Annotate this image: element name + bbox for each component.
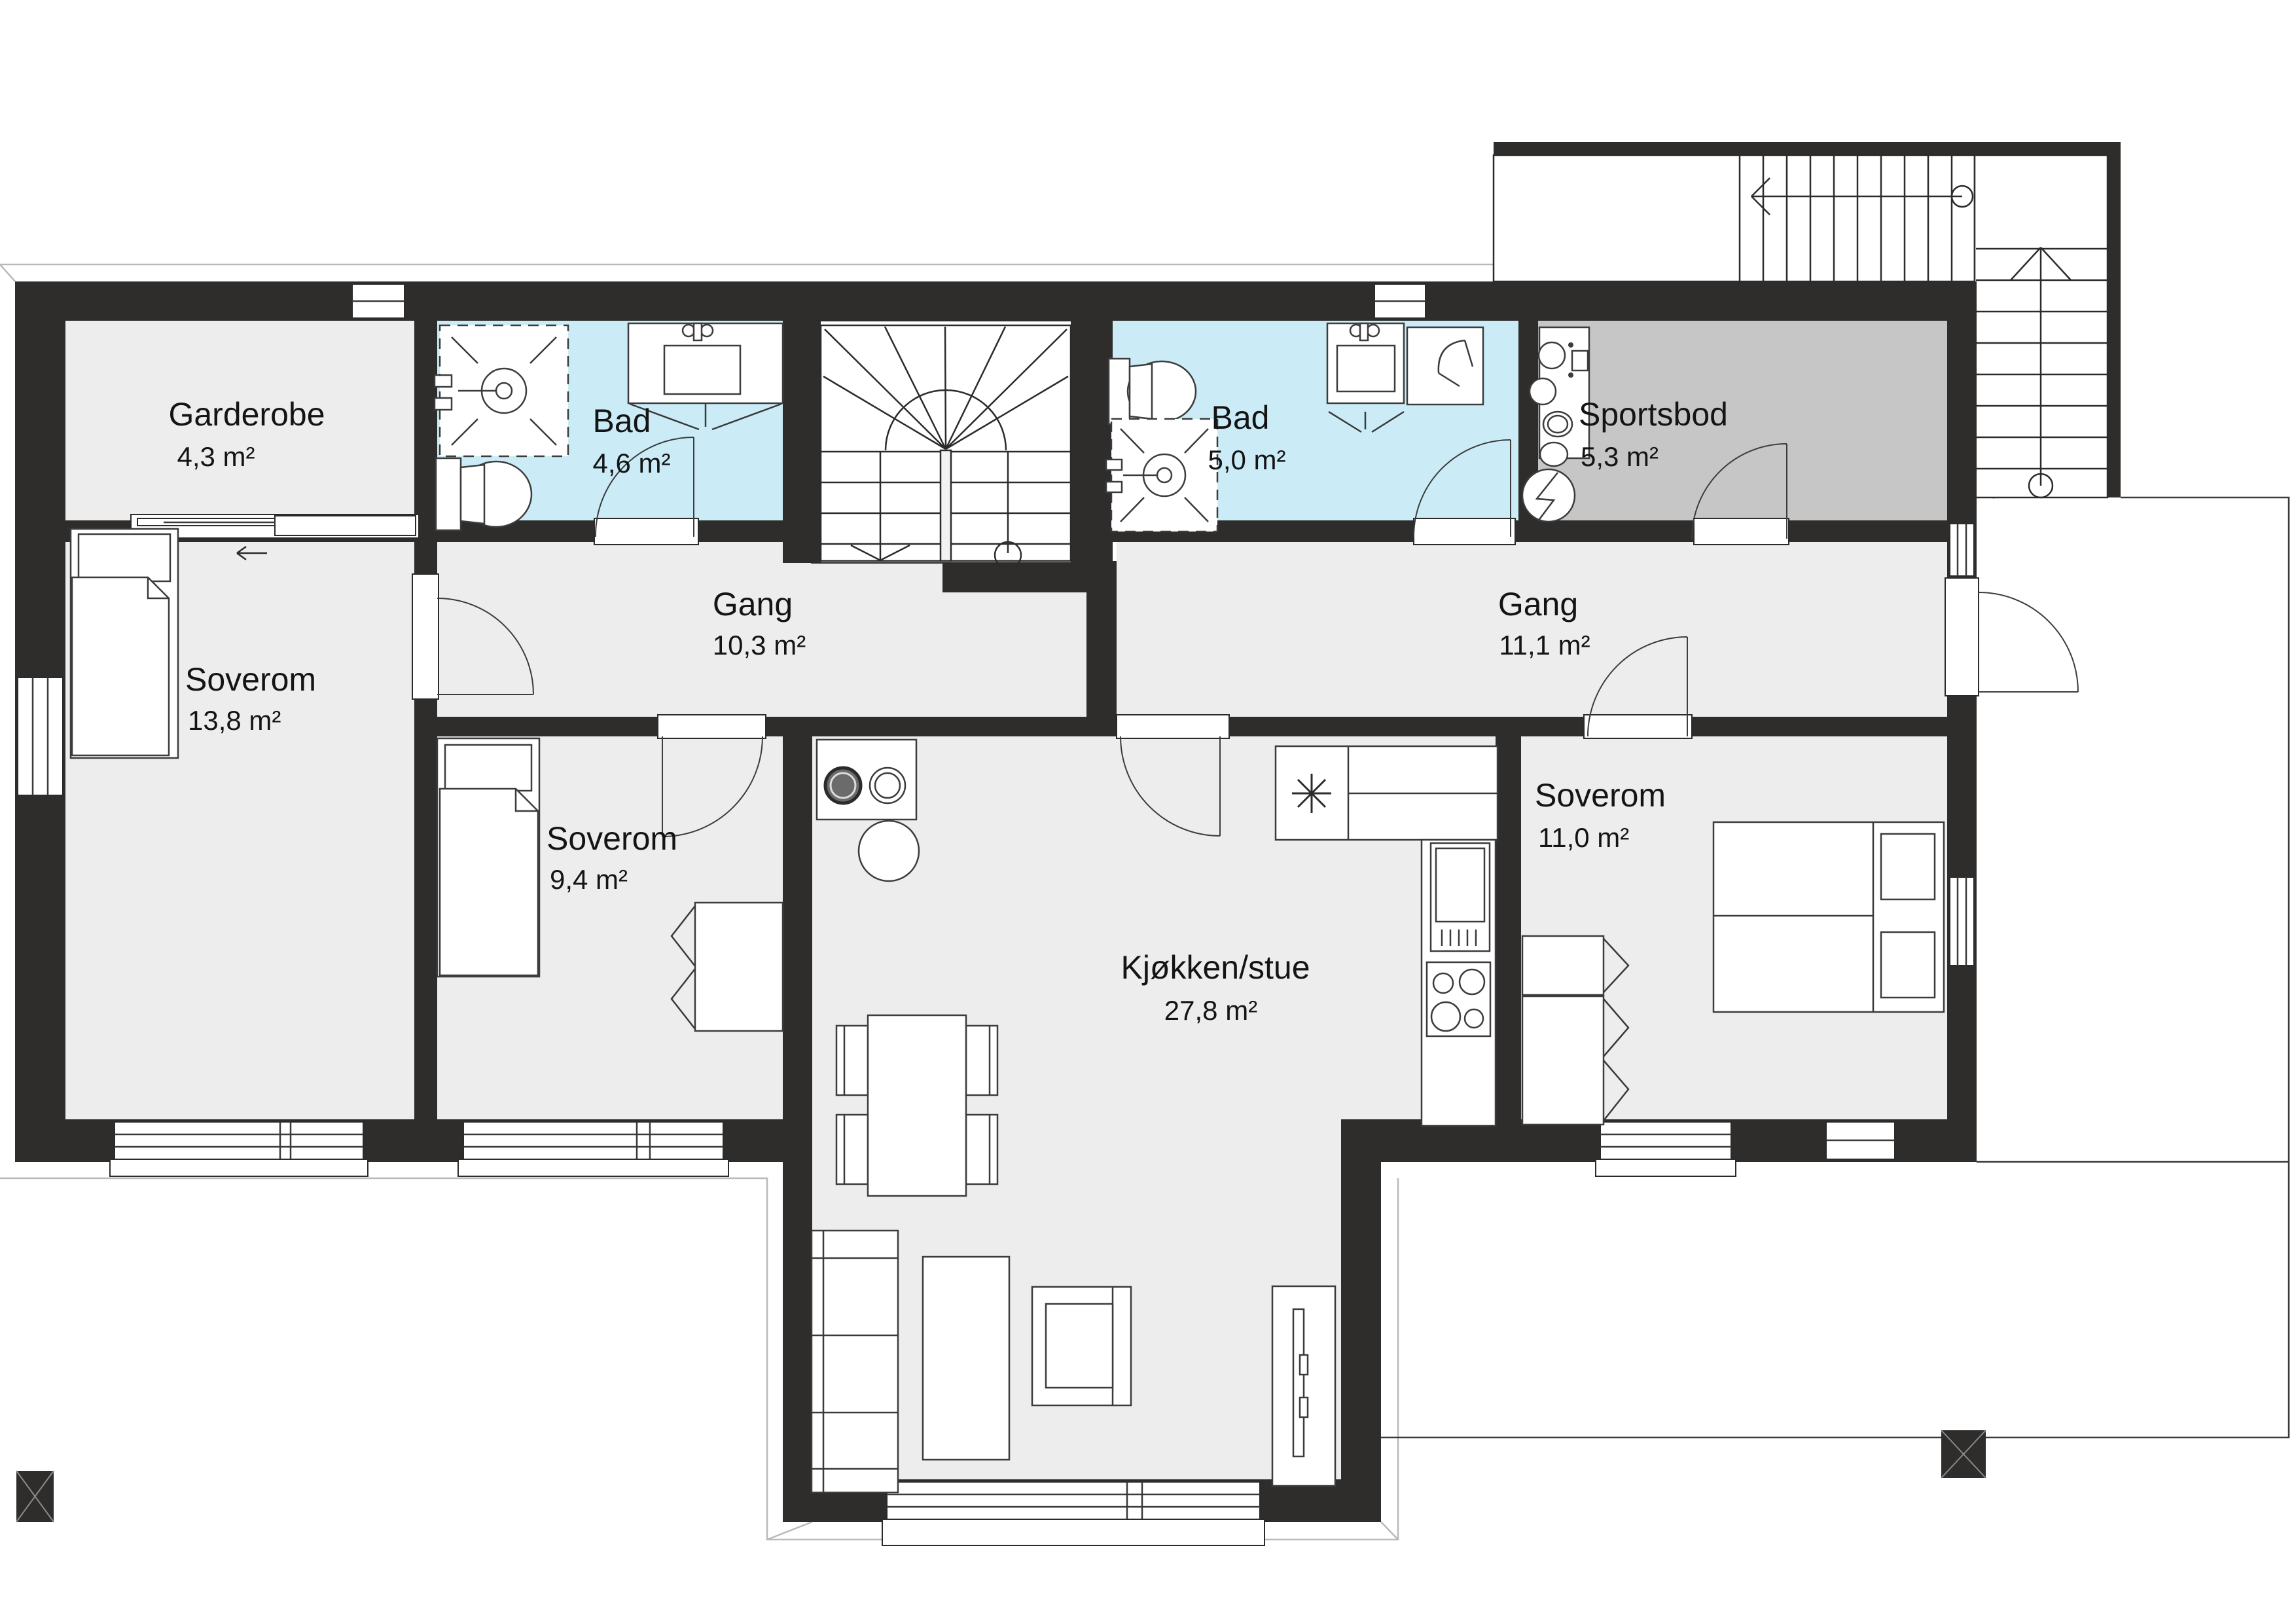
terrace-post-left <box>16 1471 54 1522</box>
armchair <box>1032 1287 1131 1405</box>
terrace-post-right <box>1941 1430 1986 1478</box>
label-soverom1-name: Soverom <box>185 661 316 698</box>
label-soverom2-area: 9,4 m² <box>550 864 628 895</box>
tv-bench <box>1272 1286 1335 1486</box>
door-entry <box>1945 578 2078 696</box>
label-kjokken-name: Kjøkken/stue <box>1121 949 1310 986</box>
toilet <box>1109 359 1196 424</box>
label-bad1-name: Bad <box>593 403 651 439</box>
label-kjokken-area: 27,8 m² <box>1164 995 1257 1026</box>
window-bottom-soverom2 <box>458 1122 728 1176</box>
label-gang1-name: Gang <box>713 586 793 623</box>
floor-gang-2 <box>1117 540 1947 717</box>
label-sportsbod-name: Sportsbod <box>1579 396 1728 433</box>
floor-plan-drawing: Garderobe 4,3 m² Bad 4,6 m² Bad 5,0 m² S… <box>0 0 2296 1624</box>
window-bottom-small <box>1826 1122 1895 1159</box>
shower <box>1106 419 1217 532</box>
wall-livingroom-right <box>1341 1162 1381 1522</box>
toilet <box>436 458 531 530</box>
cooktop <box>1427 962 1490 1036</box>
sofa <box>812 1231 898 1492</box>
wall-stair-bottom <box>942 561 1117 592</box>
wall-right <box>1947 281 1977 1162</box>
interior-staircase <box>812 321 1080 568</box>
window-right-soverom3 <box>1950 877 1974 965</box>
label-soverom3-area: 11,0 m² <box>1538 822 1629 853</box>
exterior-stair-right-wall <box>2108 142 2121 497</box>
shower <box>435 325 568 456</box>
label-garderobe-area: 4,3 m² <box>177 441 255 472</box>
window-top-bad2 <box>1374 284 1426 318</box>
label-soverom1-area: 13,8 m² <box>188 705 281 736</box>
label-sportsbod-area: 5,3 m² <box>1581 441 1659 472</box>
soverom2-bed <box>437 738 539 977</box>
exterior-stair-top-wall <box>1494 142 2121 155</box>
window-left-soverom1 <box>18 677 63 795</box>
window-right-gang2 <box>1950 524 1974 576</box>
sliding-door-livingroom <box>882 1482 1265 1545</box>
window-bottom-soverom1 <box>110 1122 368 1176</box>
wall-livingroom-left <box>783 1162 812 1522</box>
wall-soverom2-right <box>783 717 812 1119</box>
soverom3-bed <box>1713 822 1944 1012</box>
window-top-garderobe <box>352 284 404 318</box>
water-heater <box>1522 469 1575 522</box>
wall-kitchen-soverom3 <box>1496 736 1521 1119</box>
asterisk-symbol <box>1292 774 1331 813</box>
kitchen-counter-right <box>1422 840 1496 1126</box>
label-soverom2-name: Soverom <box>547 820 677 857</box>
side-table <box>923 1257 1009 1460</box>
label-gang1-area: 10,3 m² <box>713 630 806 660</box>
label-bad2-name: Bad <box>1211 399 1270 436</box>
kitchen-counter-top <box>1276 746 1498 840</box>
label-gang2-name: Gang <box>1498 586 1578 623</box>
label-gang2-area: 11,1 m² <box>1499 630 1590 660</box>
exterior-stair-upper-run <box>1494 155 1975 281</box>
label-garderobe-name: Garderobe <box>168 396 325 433</box>
soverom1-bed <box>71 529 178 758</box>
floor-plan: Garderobe 4,3 m² Bad 4,6 m² Bad 5,0 m² S… <box>0 0 2296 1624</box>
label-bad1-area: 4,6 m² <box>592 448 670 478</box>
washing-machine <box>1407 327 1483 405</box>
wall-top <box>15 281 1977 321</box>
label-bad2-area: 5,0 m² <box>1208 444 1285 475</box>
window-bottom-soverom3 <box>1596 1122 1736 1176</box>
label-soverom3-name: Soverom <box>1535 777 1666 814</box>
